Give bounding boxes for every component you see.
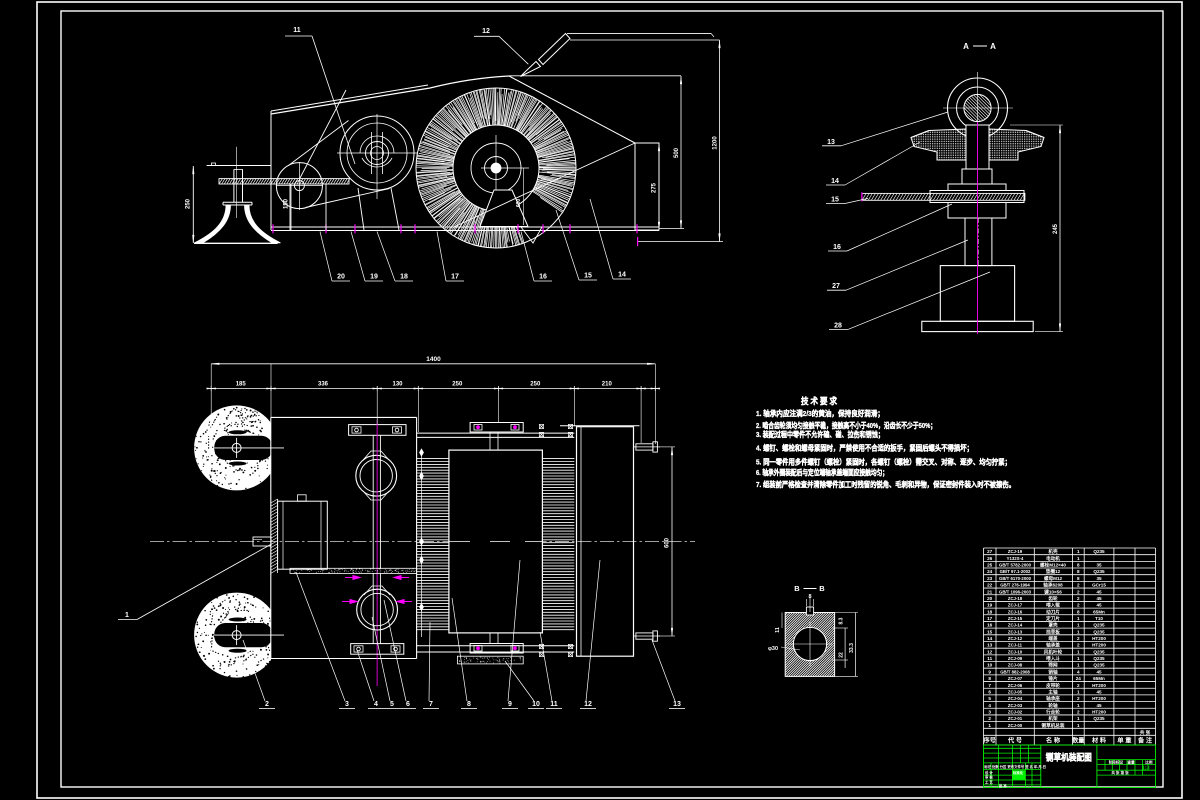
svg-text:φ30: φ30 [768,646,778,652]
svg-text:轴承6208: 轴承6208 [1043,582,1063,589]
svg-text:33.3: 33.3 [849,643,855,653]
svg-text:22: 22 [987,583,993,588]
svg-text:B: B [794,584,800,593]
svg-text:7. 组装前严格检查并清除零件加工时残留的锐角、毛刺和异物，: 7. 组装前严格检查并清除零件加工时残留的锐角、毛刺和异物，保证密封件装入时不被… [756,480,1015,489]
svg-text:ZCJ-17: ZCJ-17 [1008,603,1023,608]
svg-text:16: 16 [833,244,841,251]
svg-text:27: 27 [987,549,993,554]
svg-text:13: 13 [673,701,681,708]
svg-text:10: 10 [532,701,540,708]
svg-text:1: 1 [1077,616,1080,621]
svg-text:机架: 机架 [1048,715,1058,722]
svg-text:喂入辊: 喂入辊 [1046,602,1060,609]
svg-text:19: 19 [987,603,993,608]
svg-text:ZCJ-10: ZCJ-10 [1008,649,1023,654]
svg-text:ZCJ-00: ZCJ-00 [1008,723,1023,728]
svg-text:14: 14 [831,178,839,185]
svg-text:Q235: Q235 [1093,656,1105,661]
svg-text:HT200: HT200 [1092,643,1106,648]
svg-text:Q235: Q235 [1093,663,1105,668]
svg-text:A: A [990,42,996,51]
svg-text:Q235: Q235 [1093,629,1105,634]
svg-text:Q235: Q235 [1093,549,1105,554]
svg-text:11: 11 [987,656,992,661]
svg-text:21: 21 [987,589,993,594]
svg-text:销轴: 销轴 [1048,668,1058,675]
svg-text:9: 9 [508,701,512,708]
svg-text:阶段标记: 阶段标记 [1109,759,1124,764]
svg-text:行走轮: 行走轮 [1045,709,1060,716]
svg-text:GCr15: GCr15 [1092,583,1106,588]
svg-text:ZCJ-02: ZCJ-02 [1008,710,1023,715]
svg-text:审 核: 审 核 [985,775,993,780]
svg-text:11: 11 [550,701,558,708]
svg-text:ZCJ-13: ZCJ-13 [1008,629,1023,634]
svg-text:14: 14 [618,272,626,279]
svg-text:动刀片: 动刀片 [1046,608,1060,615]
svg-text:ZCJ-05: ZCJ-05 [1008,689,1023,694]
svg-text:250: 250 [452,382,463,388]
svg-text:1: 1 [1077,629,1080,634]
svg-text:5: 5 [390,701,394,708]
svg-text:24: 24 [1076,676,1082,681]
svg-text:150: 150 [284,198,290,209]
svg-text:4: 4 [1077,669,1080,674]
svg-text:Q235: Q235 [1093,623,1105,628]
svg-text:Q235: Q235 [1093,569,1105,574]
svg-text:GB/T 882-2008: GB/T 882-2008 [1000,669,1030,674]
svg-text:皮带轮: 皮带轮 [1046,682,1060,689]
svg-text:ZCJ-16: ZCJ-16 [1008,609,1023,614]
svg-text:B: B [819,584,825,593]
svg-text:2: 2 [1077,683,1080,688]
svg-text:机壳: 机壳 [1048,548,1058,555]
svg-text:设 计: 设 计 [985,770,993,775]
svg-text:20: 20 [987,596,993,601]
svg-text:600: 600 [665,537,671,548]
svg-text:35: 35 [1096,576,1102,581]
svg-text:筛网: 筛网 [1048,662,1058,669]
svg-text:4: 4 [374,701,378,708]
svg-text:1: 1 [988,723,991,728]
svg-text:14: 14 [987,636,993,641]
svg-text:ZCJ-04: ZCJ-04 [1008,696,1023,701]
svg-text:23: 23 [987,576,993,581]
svg-text:4. 螺钉、螺栓和螺母紧固时，严禁使用不合适的扳手，紧固后螺: 4. 螺钉、螺栓和螺母紧固时，严禁使用不合适的扳手，紧固后螺头不得损坏； [756,444,973,453]
svg-text:5. 同一零件用多件螺钉（螺栓）紧固时，各螺钉（螺栓）需交叉: 5. 同一零件用多件螺钉（螺栓）紧固时，各螺钉（螺栓）需交叉、对称、逐步、均匀拧… [756,458,1011,467]
svg-text:电动机: 电动机 [1046,555,1060,562]
svg-text:27: 27 [832,283,840,290]
svg-text:336: 336 [318,382,329,388]
svg-text:10: 10 [987,663,993,668]
svg-text:250: 250 [530,382,541,388]
svg-text:45: 45 [1096,596,1102,601]
svg-text:重量: 重量 [1127,759,1135,764]
svg-text:3: 3 [345,701,349,708]
svg-text:HT200: HT200 [1092,696,1106,701]
svg-text:45: 45 [1096,689,1102,694]
svg-text:17: 17 [451,274,459,281]
svg-text:Y132S-4: Y132S-4 [1007,556,1024,561]
svg-text:1: 1 [1077,656,1080,661]
svg-text:GB/T 5782-2000: GB/T 5782-2000 [999,563,1032,568]
svg-text:16: 16 [987,623,993,628]
svg-text:1:3: 1:3 [1142,766,1150,772]
svg-text:齿轮: 齿轮 [1048,595,1058,602]
svg-text:8: 8 [1077,569,1080,574]
svg-text:185: 185 [236,382,247,388]
svg-text:25: 25 [987,563,993,568]
svg-text:8: 8 [1077,563,1080,568]
svg-text:1: 1 [1077,663,1080,668]
svg-text:8: 8 [808,594,811,600]
svg-text:2: 2 [1077,603,1080,608]
svg-text:2: 2 [988,716,991,721]
svg-text:共 张 第 张: 共 张 第 张 [1111,770,1129,775]
svg-text:1: 1 [1077,723,1080,728]
svg-text:26: 26 [987,556,993,561]
svg-text:定刀片: 定刀片 [1046,615,1060,622]
svg-text:ZCJ-12: ZCJ-12 [1008,636,1023,641]
svg-text:12: 12 [584,701,592,708]
svg-text:2: 2 [1077,636,1080,641]
svg-text:600: 600 [516,199,522,208]
svg-text:17: 17 [987,616,993,621]
svg-text:风机叶轮: 风机叶轮 [1044,648,1063,655]
svg-text:1400: 1400 [426,356,441,363]
svg-text:ZCJ-11: ZCJ-11 [1008,643,1023,648]
svg-text:12: 12 [482,28,490,35]
svg-text:轴承座: 轴承座 [1046,695,1060,702]
svg-text:数量: 数量 [1072,737,1085,745]
svg-text:序号: 序号 [983,737,996,745]
svg-text:ZCJ-07: ZCJ-07 [1008,676,1023,681]
svg-text:ZCJ-03: ZCJ-03 [1008,703,1023,708]
svg-text:15: 15 [987,629,993,634]
svg-text:11: 11 [293,27,301,34]
svg-text:轴承盖: 轴承盖 [1046,642,1060,649]
svg-text:45: 45 [1096,669,1102,674]
svg-text:8: 8 [1077,609,1080,614]
svg-text:12: 12 [987,649,993,654]
svg-text:A: A [963,42,969,51]
svg-text:1: 1 [1077,716,1080,721]
svg-text:65Mn: 65Mn [1093,609,1105,614]
svg-text:2: 2 [1077,643,1080,648]
svg-text:2: 2 [1077,596,1080,601]
svg-text:45: 45 [1096,603,1102,608]
svg-text:喂入斗: 喂入斗 [1046,655,1060,662]
svg-text:16: 16 [539,274,547,281]
svg-text:锤片: 锤片 [1048,675,1058,682]
svg-text:3. 装配过程中零件不允许磕、碰、拉伤和锈蚀；: 3. 装配过程中零件不允许磕、碰、拉伤和锈蚀； [756,430,884,439]
svg-text:130: 130 [392,382,403,388]
svg-text:18: 18 [400,274,408,281]
svg-text:ZCJ-19: ZCJ-19 [1008,549,1023,554]
svg-text:HT200: HT200 [1092,636,1106,641]
svg-text:1: 1 [1077,649,1080,654]
svg-text:18: 18 [987,609,993,614]
svg-text:1. 轴承内应注满2/3的黄油，保持良好润滑；: 1. 轴承内应注满2/3的黄油，保持良好润滑； [756,409,884,418]
svg-text:8.3: 8.3 [839,617,845,624]
svg-text:3: 3 [988,710,991,715]
svg-text:ZCJ-08: ZCJ-08 [1008,663,1023,668]
svg-text:GB/T 6170-2000: GB/T 6170-2000 [999,576,1032,581]
svg-text:2: 2 [1077,696,1080,701]
svg-text:端盖: 端盖 [1048,635,1058,642]
svg-text:2: 2 [1077,589,1080,594]
svg-text:挡草板: 挡草板 [1046,628,1060,635]
svg-text:ZCJ-06: ZCJ-06 [1008,683,1023,688]
svg-text:2: 2 [265,701,269,708]
svg-text:9: 9 [988,669,991,674]
svg-text:键10×56: 键10×56 [1043,588,1062,595]
svg-text:HT200: HT200 [1092,710,1106,715]
svg-text:材 料: 材 料 [1091,737,1107,745]
svg-text:4: 4 [988,703,991,708]
svg-text:螺栓M12×40: 螺栓M12×40 [1040,562,1066,569]
svg-text:技 术 要 求: 技 术 要 求 [801,396,837,406]
svg-text:1: 1 [1077,689,1080,694]
svg-text:245: 245 [1053,223,1059,234]
svg-text:垫圈12: 垫圈12 [1046,568,1061,575]
svg-text:45: 45 [1096,703,1102,708]
svg-text:GB/T 97.1-2002: GB/T 97.1-2002 [1000,569,1031,574]
svg-text:13: 13 [827,139,835,146]
svg-text:11: 11 [775,627,781,633]
svg-text:1: 1 [125,612,129,619]
svg-text:HT200: HT200 [1092,683,1106,688]
svg-text:2: 2 [1077,583,1080,588]
svg-text:GB/T 276-1994: GB/T 276-1994 [1000,583,1030,588]
svg-text:8: 8 [988,676,991,681]
svg-text:45: 45 [1096,589,1102,594]
svg-text:35: 35 [1096,563,1102,568]
svg-text:8: 8 [1077,576,1080,581]
svg-text:批 准: 批 准 [999,783,1007,788]
svg-text:Q235: Q235 [1093,716,1105,721]
svg-text:罩壳: 罩壳 [1048,622,1058,629]
svg-text:ZCJ-09: ZCJ-09 [1008,656,1023,661]
svg-text:铡草机总装: 铡草机总装 [1042,722,1065,729]
svg-text:15: 15 [831,197,839,204]
svg-text:GB/T 1096-2003: GB/T 1096-2003 [999,589,1032,594]
svg-text:Q235: Q235 [1093,649,1105,654]
svg-text:7: 7 [429,701,433,708]
svg-text:名 称: 名 称 [1046,737,1061,745]
svg-text:代 号: 代 号 [1007,737,1022,745]
svg-text:备 注: 备 注 [1137,737,1153,745]
svg-text:13: 13 [987,643,993,648]
svg-text:共 张: 共 张 [1140,729,1151,736]
svg-text:8: 8 [467,701,471,708]
svg-text:标记 处数 分区 更改文件号 签 名 年.月.日: 标记 处数 分区 更改文件号 签 名 年.月.日 [983,764,1046,769]
svg-text:工 艺: 工 艺 [985,780,993,785]
svg-text:ZCJ-18: ZCJ-18 [1008,596,1023,601]
svg-text:1: 1 [1077,703,1080,708]
svg-text:250: 250 [186,198,192,209]
svg-text:ZCJ-01: ZCJ-01 [1008,716,1023,721]
svg-text:比例: 比例 [1145,759,1153,764]
svg-text:ZCJ-14: ZCJ-14 [1008,623,1023,628]
svg-text:5: 5 [988,696,991,701]
svg-text:275: 275 [652,182,658,193]
svg-text:20: 20 [337,274,345,281]
svg-text:铡草机装配图: 铡草机装配图 [1046,752,1092,763]
svg-text:500: 500 [674,147,680,158]
svg-text:T10: T10 [1095,616,1103,621]
svg-text:螺母M12: 螺母M12 [1044,575,1063,582]
svg-text:7: 7 [988,683,991,688]
svg-text:单 重: 单 重 [1117,737,1132,745]
svg-text:22: 22 [839,652,845,658]
svg-text:28: 28 [834,322,842,329]
svg-text:2. 啮合齿轮须均匀接触平稳，接触高不小于40%，沿齿长不少: 2. 啮合齿轮须均匀接触平稳，接触高不小于40%，沿齿长不少于50%； [756,421,936,430]
svg-text:1200: 1200 [713,136,719,150]
svg-text:2: 2 [1077,710,1080,715]
svg-text:65Mn: 65Mn [1093,676,1105,681]
svg-text:6: 6 [988,689,991,694]
svg-text:6. 轴承外圈装配后与定位端轴承盖端面应接触均匀；: 6. 轴承外圈装配后与定位端轴承盖端面应接触均匀； [756,468,888,477]
svg-text:1: 1 [1077,556,1080,561]
svg-text:1: 1 [1077,623,1080,628]
svg-text:19: 19 [370,274,378,281]
svg-text:15: 15 [584,273,592,280]
svg-text:轮轴: 轮轴 [1048,702,1058,709]
svg-text:6: 6 [406,701,410,708]
svg-text:主轴: 主轴 [1048,688,1058,695]
svg-text:210: 210 [602,382,613,388]
svg-text:标准化: 标准化 [1012,770,1024,775]
svg-text:24: 24 [987,569,993,574]
svg-text:1: 1 [1077,549,1080,554]
svg-text:ZCJ-15: ZCJ-15 [1008,616,1023,621]
